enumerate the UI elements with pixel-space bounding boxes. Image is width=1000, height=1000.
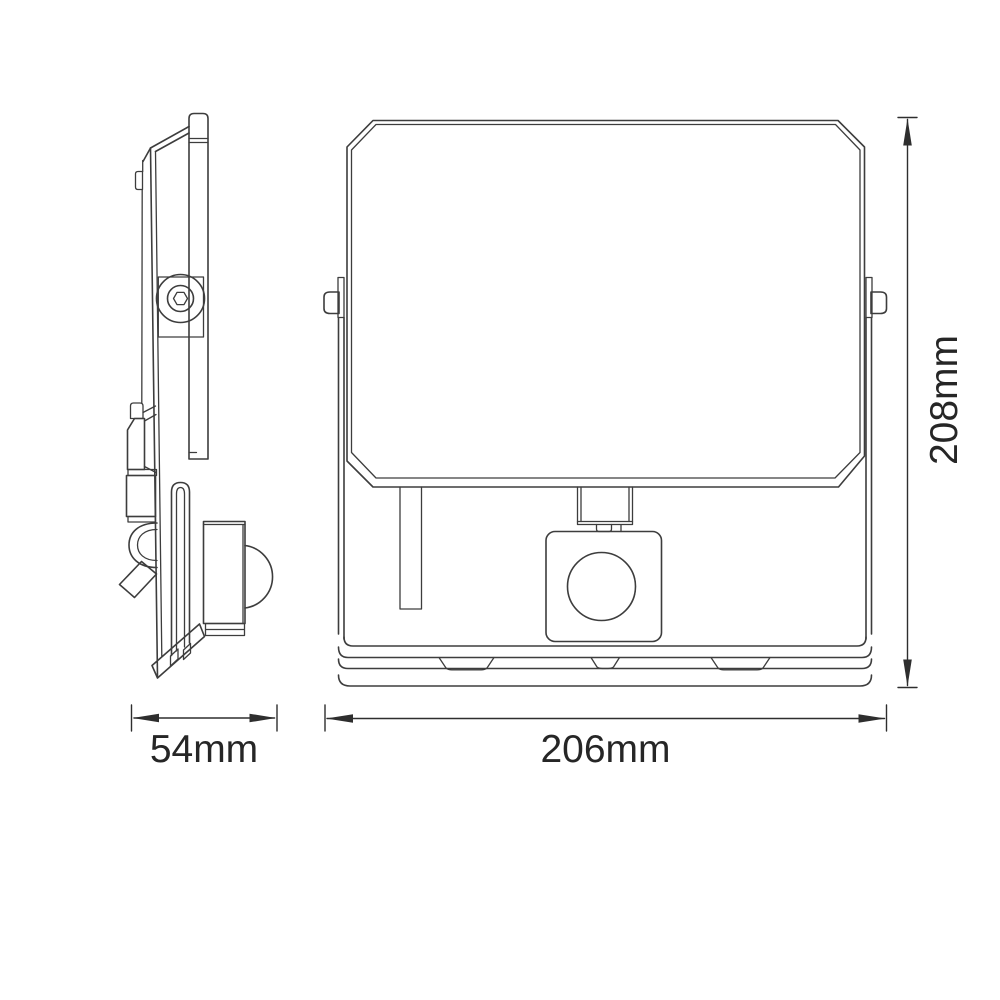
hex-bolt-icon	[174, 292, 188, 304]
slab-left-silhouette	[142, 161, 143, 404]
bracket-knob-right	[871, 292, 887, 314]
dimension-side-width: 54mm	[132, 705, 278, 771]
sensor-neck-tab	[597, 525, 612, 532]
arrowhead-bottom-icon	[903, 660, 912, 687]
arrowhead-left-icon	[326, 714, 353, 723]
body-side-right	[866, 318, 872, 640]
base-notch-center	[591, 658, 620, 669]
technical-drawing-canvas: 54mm 206mm 208mm	[0, 0, 1000, 1000]
base-fin-1	[339, 647, 872, 658]
pir-lens	[568, 553, 636, 621]
arrowhead-right-icon	[250, 714, 277, 723]
bracket-arm-joint	[189, 139, 208, 453]
yoke-arm-front	[400, 487, 422, 609]
arrowhead-top-icon	[903, 119, 912, 146]
sensor-flange	[578, 522, 633, 532]
sensor-stem	[578, 487, 633, 522]
base-bottom-edge	[339, 675, 872, 686]
pir-housing-front	[546, 532, 662, 642]
side-view	[120, 114, 273, 679]
floodlight-dimension-drawing: 54mm 206mm 208mm	[0, 0, 1000, 1000]
body-side-left	[339, 318, 345, 640]
yoke-loop-inner	[177, 488, 185, 652]
pir-housing-side-inner	[204, 525, 246, 624]
side-clip-nub	[136, 172, 143, 190]
dimension-label-front-width: 206mm	[540, 728, 670, 771]
junction-box-lower	[127, 476, 156, 517]
front-view	[324, 121, 887, 687]
dimension-front-width: 206mm	[325, 705, 887, 771]
junction-band	[128, 517, 156, 523]
dimension-label-front-height: 208mm	[923, 335, 966, 465]
bracket-arm	[189, 114, 208, 460]
front-frame-outer	[347, 121, 865, 488]
pir-dome-side	[245, 546, 273, 609]
front-frame-inner	[352, 125, 861, 479]
arrowhead-right-icon	[859, 714, 886, 723]
pir-flange-side	[206, 624, 245, 636]
cable-gland-inner	[138, 530, 158, 561]
dimension-label-side-width: 54mm	[150, 728, 258, 771]
junction-tab	[131, 403, 144, 419]
pivot-boss	[157, 275, 205, 323]
bracket-knob-left	[324, 292, 339, 314]
pir-housing-side	[204, 522, 246, 624]
dimension-front-height: 208mm	[898, 118, 966, 688]
base-fin-2	[339, 659, 872, 669]
junction-box-upper	[128, 419, 145, 470]
yoke-loop-outer	[172, 483, 190, 656]
arrowhead-left-icon	[133, 714, 160, 723]
